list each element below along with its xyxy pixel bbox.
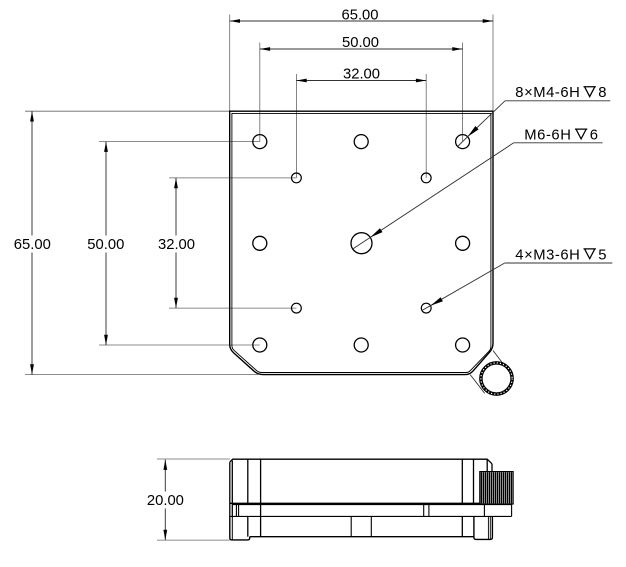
svg-text:65.00: 65.00 [341,7,378,23]
svg-text:8: 8 [598,85,606,101]
svg-text:4×M3-6H: 4×M3-6H [515,247,580,263]
svg-text:20.00: 20.00 [147,493,184,509]
svg-text:6: 6 [590,128,598,144]
svg-text:65.00: 65.00 [14,237,51,253]
svg-text:50.00: 50.00 [87,237,124,253]
svg-text:8×M4-6H: 8×M4-6H [515,85,580,101]
svg-text:5: 5 [598,247,606,263]
svg-text:32.00: 32.00 [158,237,195,253]
svg-text:50.00: 50.00 [342,35,379,51]
svg-text:M6-6H: M6-6H [524,128,571,144]
svg-text:32.00: 32.00 [343,66,380,82]
